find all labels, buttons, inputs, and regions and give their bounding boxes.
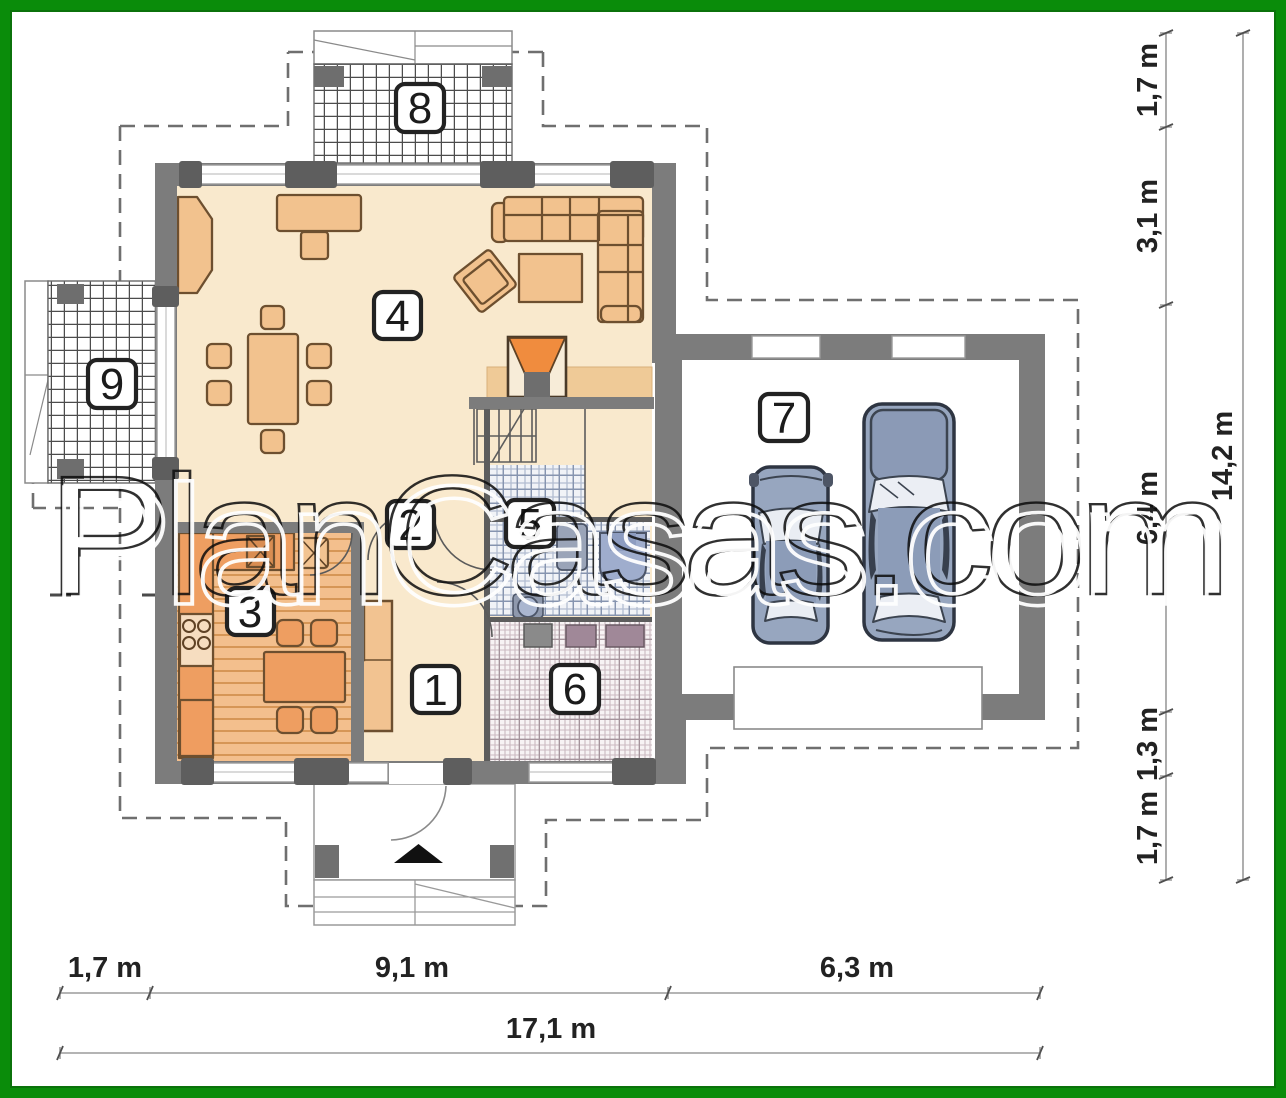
svg-text:17,1 m: 17,1 m — [506, 1013, 596, 1045]
svg-text:1,7 m: 1,7 m — [68, 952, 142, 984]
svg-text:1: 1 — [423, 666, 447, 715]
svg-text:7: 7 — [772, 394, 796, 443]
svg-text:1,7 m: 1,7 m — [1132, 43, 1164, 117]
svg-text:9,1 m: 9,1 m — [375, 952, 449, 984]
svg-text:PlanCasas.com: PlanCasas.com — [49, 451, 1225, 641]
svg-text:1,3 m: 1,3 m — [1132, 707, 1164, 781]
svg-text:6,3 m: 6,3 m — [820, 952, 894, 984]
svg-text:4: 4 — [385, 292, 409, 341]
svg-text:9: 9 — [100, 360, 124, 409]
svg-text:1,7 m: 1,7 m — [1132, 791, 1164, 865]
svg-text:6: 6 — [563, 665, 587, 714]
svg-text:8: 8 — [408, 84, 432, 133]
svg-text:3,1 m: 3,1 m — [1132, 179, 1164, 253]
